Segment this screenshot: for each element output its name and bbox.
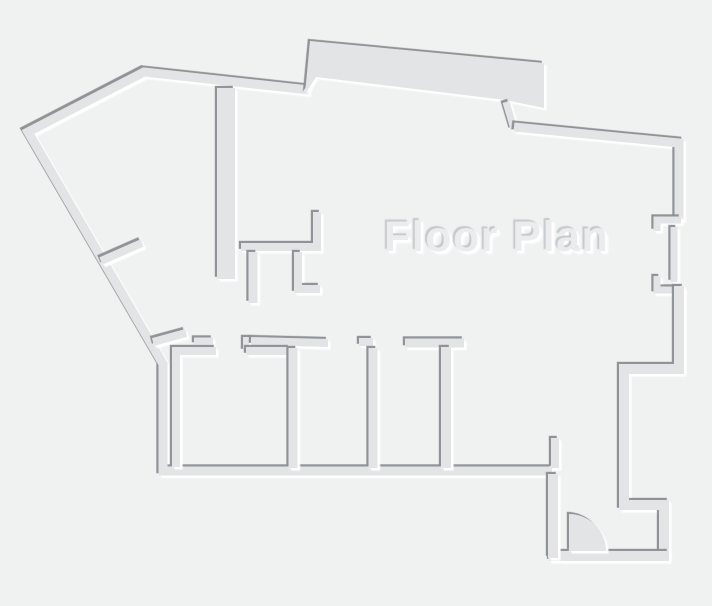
floor-plan-page: Floor Plan (0, 0, 712, 606)
plan-title: Floor Plan (384, 213, 609, 262)
floor-plan-drawing (0, 0, 712, 606)
corridor-wall (251, 341, 328, 343)
